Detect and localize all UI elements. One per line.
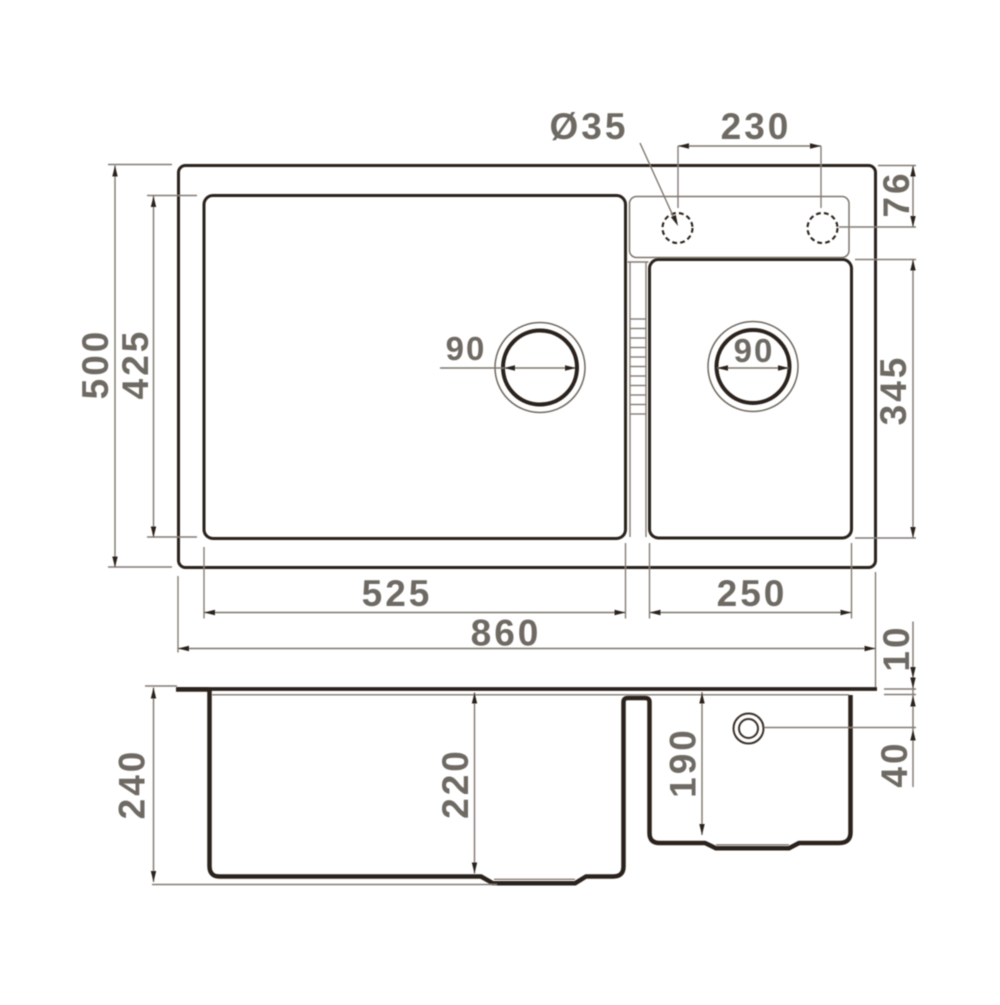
svg-text:425: 425 (115, 329, 156, 400)
svg-text:Ø35: Ø35 (550, 106, 629, 147)
svg-text:250: 250 (717, 573, 788, 614)
svg-text:525: 525 (362, 573, 433, 614)
svg-text:40: 40 (874, 740, 915, 787)
svg-text:220: 220 (435, 748, 476, 819)
svg-text:10: 10 (876, 624, 917, 671)
svg-text:500: 500 (75, 329, 116, 400)
svg-text:345: 345 (873, 355, 914, 426)
svg-text:190: 190 (663, 727, 704, 798)
svg-text:76: 76 (876, 170, 917, 217)
svg-text:240: 240 (112, 749, 153, 820)
svg-text:90: 90 (446, 330, 487, 367)
svg-text:230: 230 (721, 106, 792, 147)
svg-text:90: 90 (734, 332, 775, 369)
svg-text:860: 860 (471, 613, 542, 654)
